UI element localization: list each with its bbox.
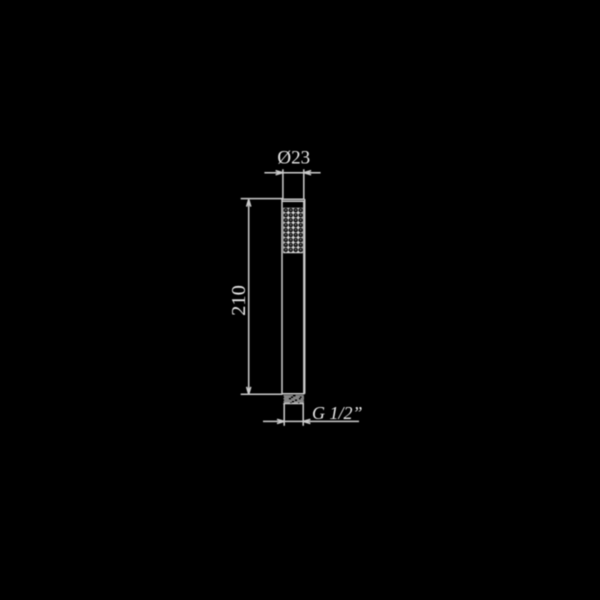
svg-text:Ø23: Ø23 <box>277 147 310 168</box>
svg-text:G 1/2”: G 1/2” <box>312 403 363 423</box>
svg-text:210: 210 <box>228 285 250 316</box>
